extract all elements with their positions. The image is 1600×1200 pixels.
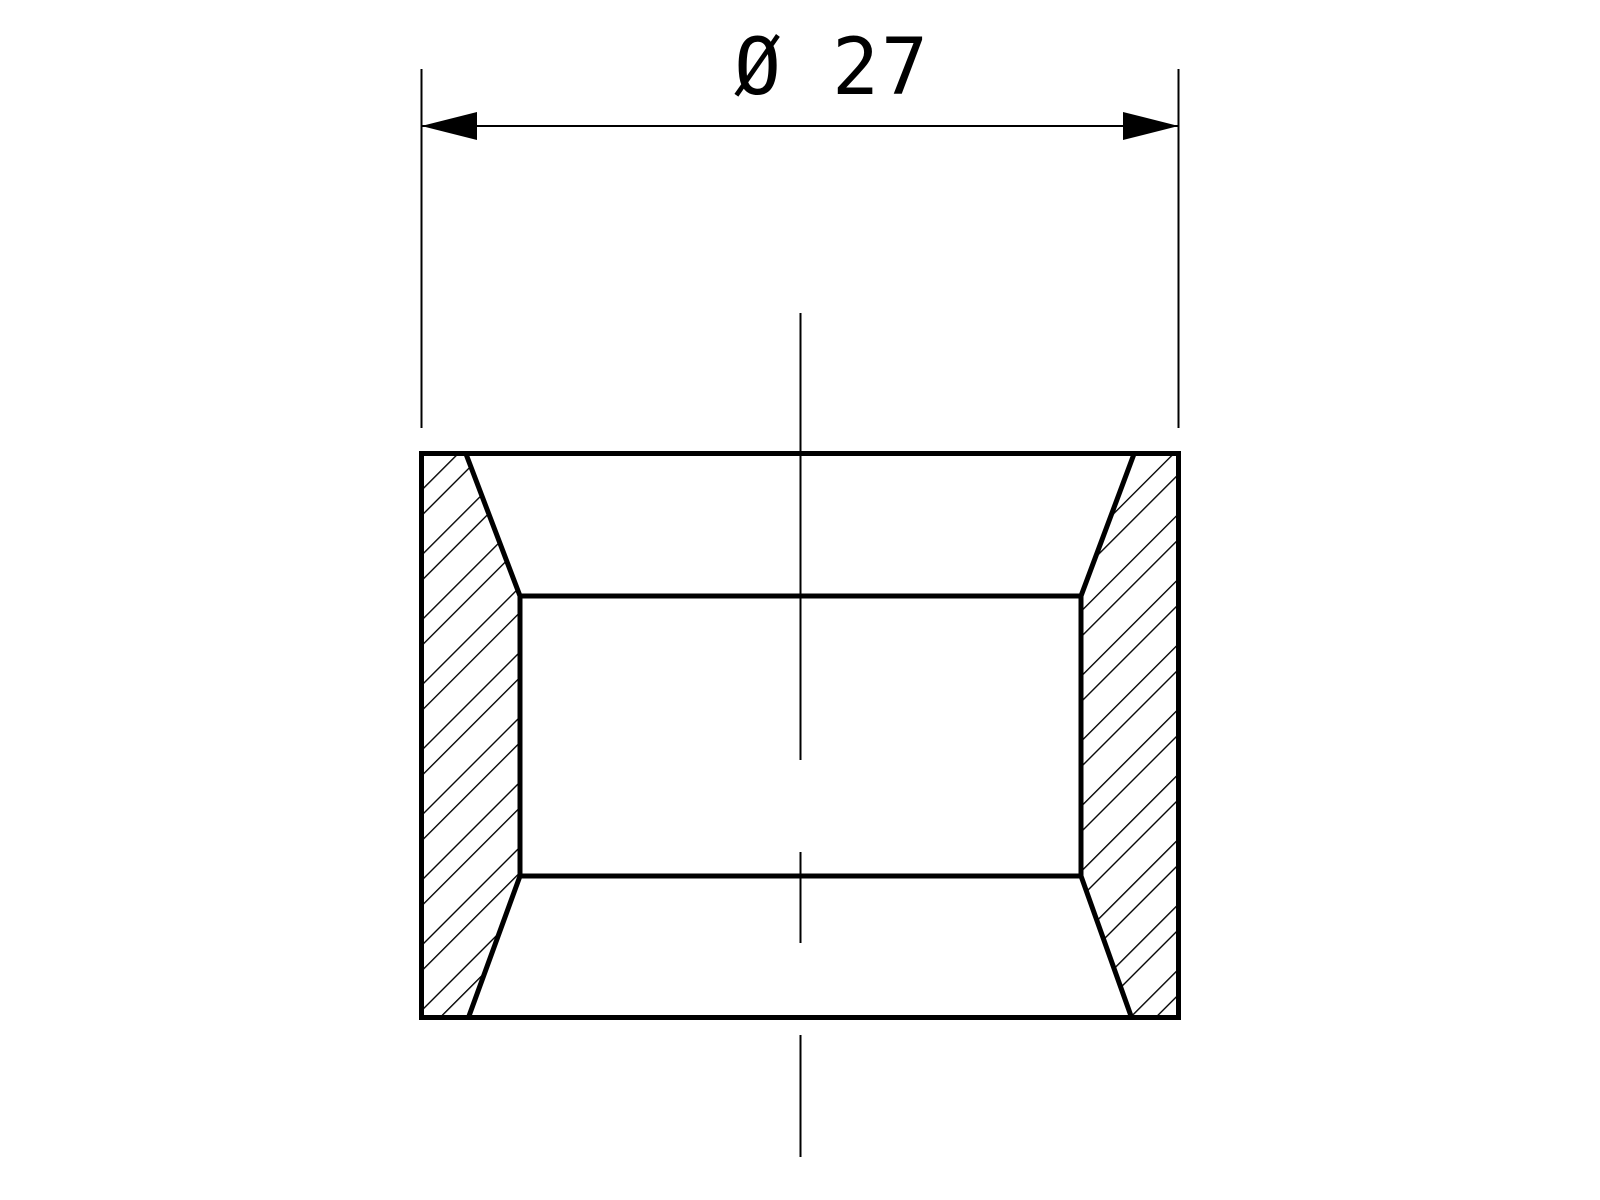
hatch-right-wall: [1081, 453, 1179, 1018]
dimension-label: Ø 27: [734, 29, 930, 107]
section-view-canvas: [0, 0, 1600, 1200]
drawing-sheet: Ø 27: [0, 0, 1600, 1200]
arrowhead-left-icon: [422, 112, 478, 140]
hatch-left-wall: [421, 453, 520, 1018]
arrowhead-right-icon: [1123, 112, 1179, 140]
